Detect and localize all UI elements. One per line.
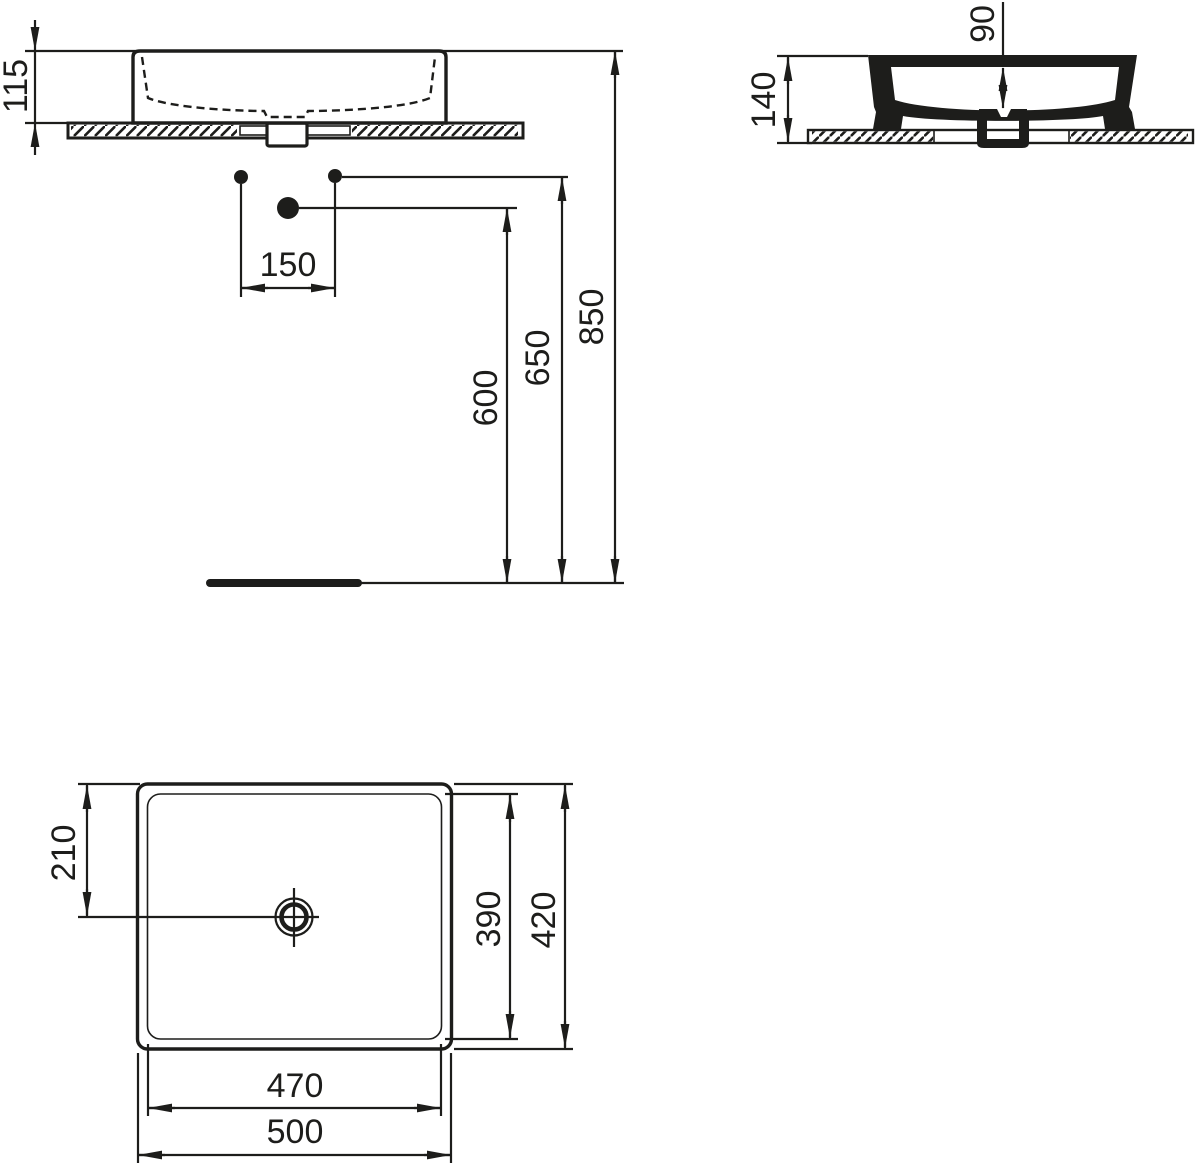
drain-point: [277, 197, 299, 219]
dim-label-140: 140: [745, 72, 783, 129]
technical-drawing-canvas: 115 150 600 65: [0, 0, 1200, 1165]
dim-850: 850: [573, 51, 615, 583]
drain-fitting-front: [267, 123, 307, 146]
dim-390: 390: [445, 794, 518, 1039]
dim-label-850: 850: [573, 289, 611, 346]
countertop-hatch-left: [812, 131, 933, 141]
dim-600: 600: [467, 208, 507, 583]
countertop-hatch-right: [1070, 131, 1188, 141]
dim-210: 210: [45, 784, 140, 916]
front-view: 115 150 600 65: [0, 20, 624, 583]
fixing-hole-left: [234, 170, 248, 184]
plan-view: 210 390 420 470: [45, 784, 573, 1163]
dim-115: 115: [0, 20, 35, 155]
dim-label-150: 150: [260, 246, 317, 284]
dim-label-90: 90: [964, 5, 1002, 43]
washbasin-dimension-drawing: 115 150 600 65: [0, 0, 1200, 1165]
dim-150: 150: [241, 246, 335, 288]
dim-label-115: 115: [0, 59, 35, 113]
dim-label-470: 470: [267, 1067, 324, 1105]
countertop-hatch-right: [352, 125, 518, 136]
dim-470: 470: [148, 1044, 441, 1116]
dim-label-650: 650: [519, 330, 557, 387]
dim-140: 140: [745, 57, 788, 142]
basin-outline-front: [133, 51, 446, 123]
fixing-hole-right: [328, 169, 342, 183]
dim-label-390: 390: [470, 891, 508, 948]
dim-650: 650: [519, 177, 562, 583]
side-view: 140 90: [745, 2, 1193, 148]
countertop-hatch-left: [71, 125, 237, 136]
dim-label-500: 500: [267, 1113, 324, 1151]
dim-label-420: 420: [525, 892, 563, 949]
dim-label-600: 600: [467, 370, 505, 427]
dim-label-210: 210: [45, 825, 83, 882]
